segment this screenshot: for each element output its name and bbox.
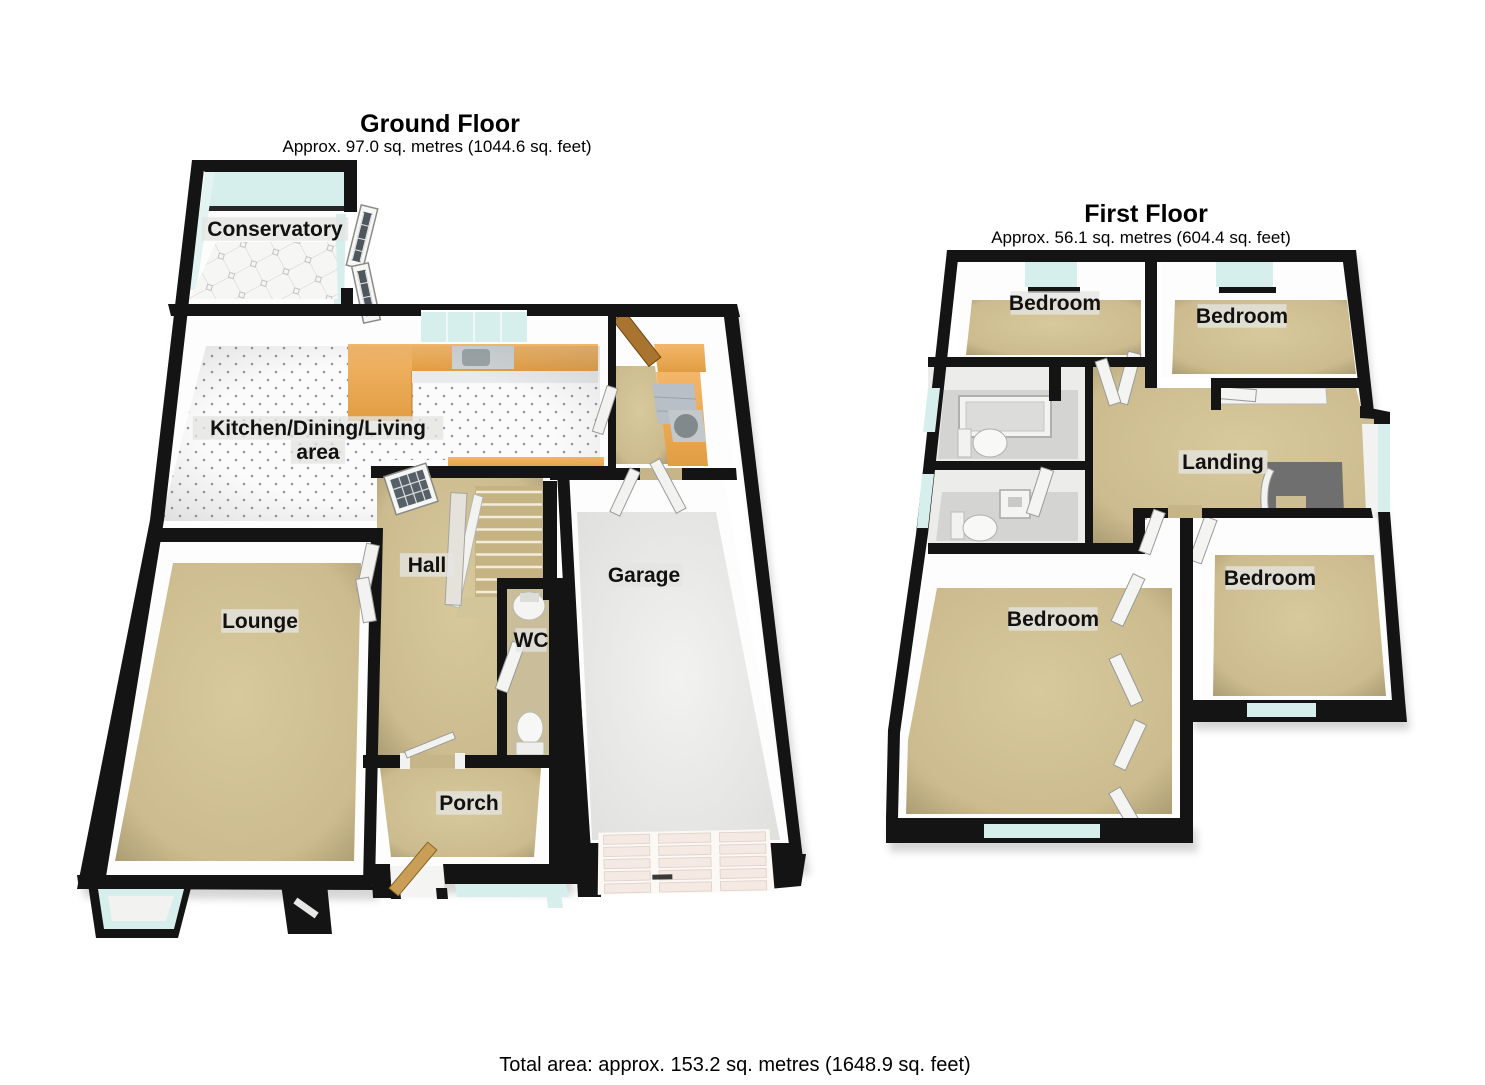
svg-text:Total area: approx. 153.2 sq.: Total area: approx. 153.2 sq. metres (16… [499,1054,970,1076]
svg-text:Bedroom: Bedroom [1224,567,1316,590]
svg-text:Approx. 97.0 sq. metres (1044.: Approx. 97.0 sq. metres (1044.6 sq. feet… [283,137,592,156]
svg-text:Conservatory: Conservatory [207,218,343,241]
svg-text:Landing: Landing [1182,451,1264,474]
svg-text:Approx. 56.1 sq. metres (604.4: Approx. 56.1 sq. metres (604.4 sq. feet) [991,228,1291,247]
svg-text:Kitchen/Dining/Living: Kitchen/Dining/Living [210,417,426,440]
svg-text:Bedroom: Bedroom [1196,305,1288,328]
svg-text:Bedroom: Bedroom [1009,292,1101,315]
svg-text:Bedroom: Bedroom [1007,608,1099,631]
svg-text:First Floor: First Floor [1084,200,1208,228]
svg-text:area: area [296,441,340,464]
svg-text:Ground Floor: Ground Floor [360,110,520,138]
svg-text:WC: WC [514,629,549,652]
svg-text:Porch: Porch [439,792,499,815]
svg-text:Lounge: Lounge [222,610,298,633]
svg-text:Hall: Hall [408,554,447,577]
svg-text:Garage: Garage [608,564,680,587]
